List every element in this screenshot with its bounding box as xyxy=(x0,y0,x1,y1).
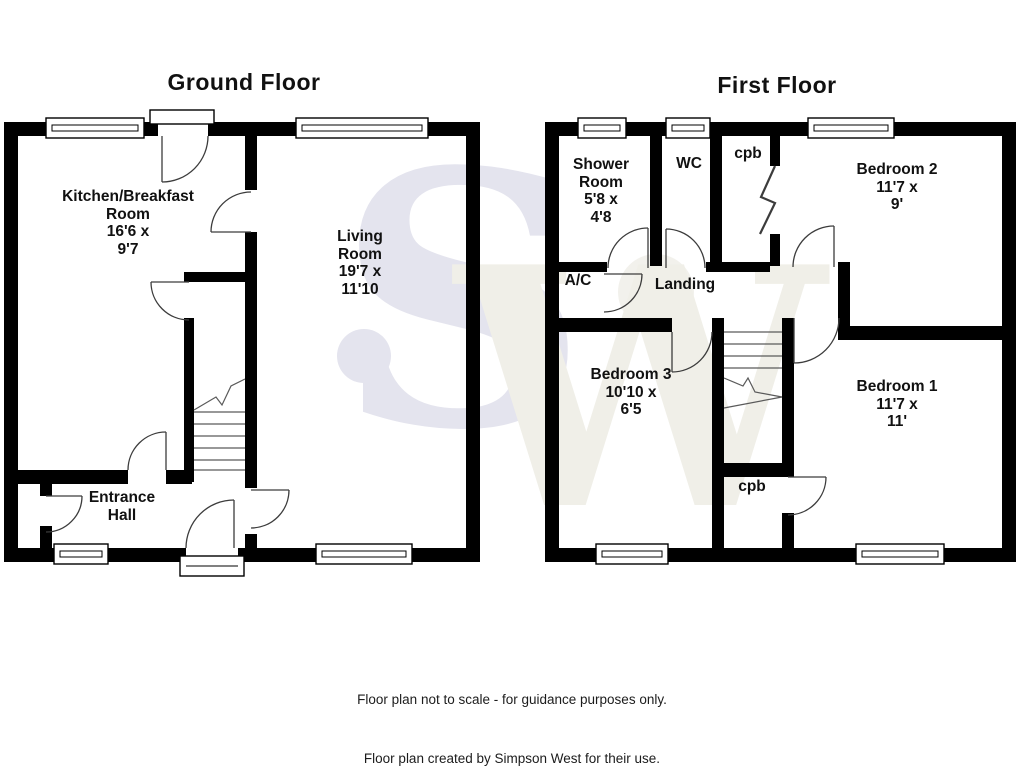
window-icon xyxy=(46,118,144,138)
door-icon xyxy=(251,490,289,528)
window-icon xyxy=(808,118,894,138)
room-label-bedroom-2: Bedroom 2 11'7 x 9' xyxy=(857,161,938,214)
window-icon xyxy=(596,544,668,564)
door-icon xyxy=(151,282,189,320)
room-label-shower-room: Shower Room 5'8 x 4'8 xyxy=(573,156,629,226)
room-label-landing: Landing xyxy=(655,276,715,294)
footer-line-2: Floor plan created by Simpson West for t… xyxy=(357,749,667,768)
room-label-bedroom-3: Bedroom 3 10'10 x 6'5 xyxy=(591,366,672,419)
window-icon xyxy=(666,118,710,138)
room-label-ac: A/C xyxy=(565,272,592,290)
window-icon xyxy=(296,118,428,138)
window-icon xyxy=(578,118,626,138)
door-icon xyxy=(186,500,234,548)
room-label-living: Living Room 19'7 x 11'10 xyxy=(337,228,383,298)
back-door-frame-icon xyxy=(150,110,214,124)
window-icon xyxy=(316,544,412,564)
window-icon xyxy=(54,544,108,564)
footer-line-1: Floor plan not to scale - for guidance p… xyxy=(357,690,667,710)
door-icon xyxy=(211,192,251,232)
first-floor-title: First Floor xyxy=(717,72,836,99)
ground-floor-title: Ground Floor xyxy=(168,69,321,96)
room-label-wc: WC xyxy=(676,155,702,173)
room-label-cupboard-bottom: cpb xyxy=(738,478,766,496)
door-icon xyxy=(128,432,166,470)
window-icon xyxy=(856,544,944,564)
front-door-frame-icon xyxy=(180,556,244,576)
room-label-bedroom-1: Bedroom 1 11'7 x 11' xyxy=(857,378,938,431)
floorplan-page: S W xyxy=(0,0,1024,768)
footer-disclaimer: Floor plan not to scale - for guidance p… xyxy=(357,651,667,768)
room-label-kitchen: Kitchen/Breakfast Room 16'6 x 9'7 xyxy=(62,188,194,258)
room-label-cupboard-top: cpb xyxy=(734,145,762,163)
room-label-entrance-hall: Entrance Hall xyxy=(89,489,155,524)
stairs-icon xyxy=(194,379,245,470)
door-icon xyxy=(162,136,208,182)
